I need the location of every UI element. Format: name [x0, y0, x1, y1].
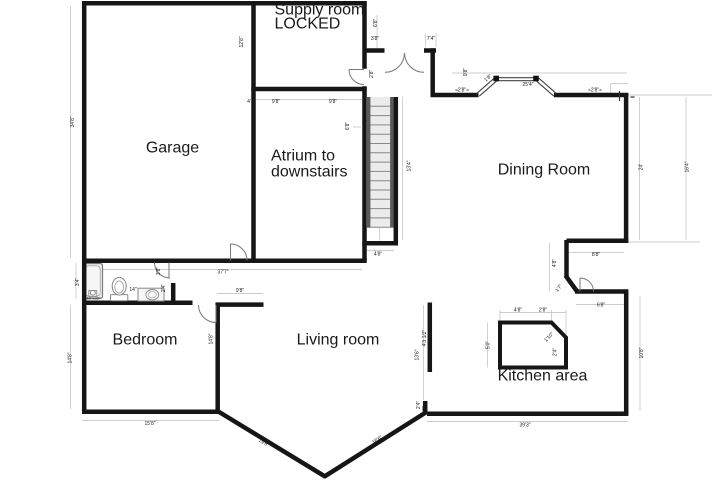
- svg-text:Bedroom: Bedroom: [113, 332, 178, 349]
- svg-text:6'8": 6'8": [345, 122, 351, 131]
- svg-text:«2'8"»: «2'8"»: [588, 88, 602, 94]
- svg-text:25'4": 25'4": [522, 82, 533, 88]
- svg-text:9'8": 9'8": [272, 99, 281, 105]
- svg-text:16'4": 16'4": [685, 161, 691, 172]
- svg-text:3'8": 3'8": [371, 36, 380, 42]
- svg-text:3'4": 3'4": [75, 278, 81, 287]
- svg-text:2'8": 2'8": [539, 308, 548, 314]
- svg-text:Living room: Living room: [297, 332, 380, 349]
- svg-text:9'8": 9'8": [236, 288, 245, 294]
- svg-text:9'8": 9'8": [329, 99, 338, 105]
- svg-text:10'8": 10'8": [639, 347, 645, 358]
- svg-text:6'8": 6'8": [597, 303, 606, 309]
- svg-text:15'8": 15'8": [144, 421, 155, 427]
- svg-text:60"x32": 60"x32": [87, 296, 101, 301]
- svg-text:14'8": 14'8": [68, 352, 74, 363]
- svg-text:1'0": 1'0": [422, 406, 428, 415]
- svg-text:9'8": 9'8": [463, 68, 469, 77]
- svg-text:Garage: Garage: [146, 140, 199, 157]
- svg-text:24': 24': [639, 164, 645, 171]
- svg-text:6'8": 6'8": [373, 18, 379, 27]
- svg-text:13'4": 13'4": [407, 160, 413, 171]
- svg-text:39'3": 39'3": [519, 423, 530, 429]
- svg-text:LOCKED: LOCKED: [275, 16, 341, 33]
- svg-text:downstairs: downstairs: [271, 164, 347, 181]
- svg-text:2'4": 2'4": [161, 284, 167, 293]
- svg-text:3'8": 3'8": [156, 267, 162, 276]
- svg-text:Dining Room: Dining Room: [498, 162, 590, 179]
- svg-text:14'8": 14'8": [209, 333, 215, 344]
- svg-text:2'8": 2'8": [369, 69, 375, 78]
- svg-text:Atrium to: Atrium to: [271, 148, 335, 165]
- svg-text:4'8": 4'8": [514, 308, 523, 314]
- svg-text:37'7": 37'7": [217, 270, 228, 276]
- svg-text:13'6": 13'6": [415, 349, 421, 360]
- svg-text:4'3 1/2": 4'3 1/2": [422, 329, 428, 346]
- svg-text:Kitchen area: Kitchen area: [498, 368, 588, 385]
- svg-text:34'8": 34'8": [70, 116, 76, 127]
- svg-text:12'8": 12'8": [239, 36, 245, 47]
- svg-text:14": 14": [129, 287, 137, 293]
- svg-text:7'4": 7'4": [427, 36, 436, 42]
- svg-text:8'8": 8'8": [592, 252, 601, 258]
- svg-text:4'8": 4'8": [374, 252, 383, 258]
- svg-text:4': 4': [247, 99, 251, 105]
- svg-text:2'4": 2'4": [553, 348, 559, 357]
- svg-text:5'0": 5'0": [486, 341, 492, 350]
- svg-text:«2'8"»: «2'8"»: [455, 88, 469, 94]
- svg-text:4'8": 4'8": [552, 259, 558, 268]
